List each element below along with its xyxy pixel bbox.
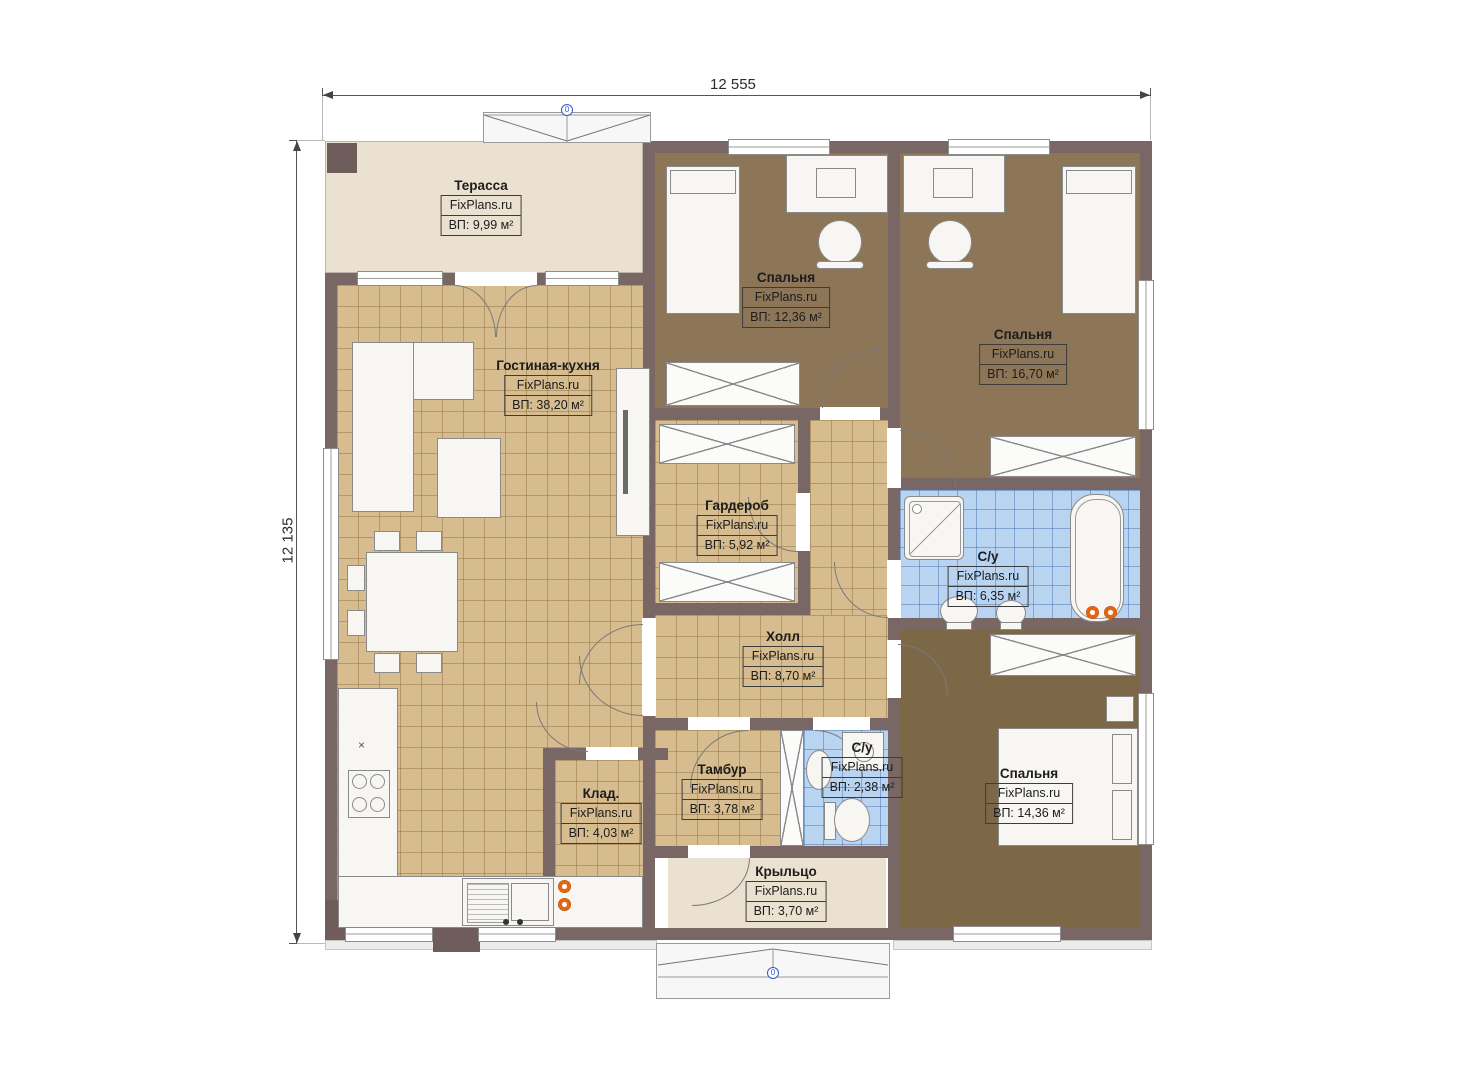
room-area: ВП: 6,35 м² [949,587,1028,606]
fixture-cross-mark: × [358,738,365,752]
door-bath2-opening [813,717,870,730]
room-label-bedroom-1: Спальня FixPlans.ruВП: 12,36 м² [742,270,830,328]
opening-living-hall [642,618,656,716]
burner [370,797,385,812]
pillow [1112,734,1132,784]
dining-chair-1 [374,531,400,551]
chair-back-1 [816,261,864,269]
room-area: ВП: 3,78 м² [683,800,762,819]
room-area: ВП: 4,03 м² [562,824,641,843]
door-bath1-opening [887,560,901,618]
dining-chair-3 [374,653,400,673]
sink-faucet-dot [503,919,509,925]
window-bedroom3-bottom [953,926,1061,942]
dining-chair-6 [347,610,365,636]
room-area: ВП: 16,70 м² [980,365,1066,384]
wall-mid-right-divider [888,141,900,940]
office-chair-1 [818,220,862,264]
room-area: ВП: 8,70 м² [744,667,823,686]
toilet-2-bowl [834,798,870,842]
room-name: Тамбур [698,762,747,777]
room-name: Гостиная-кухня [496,358,599,373]
sink-faucet-dot [517,919,523,925]
dining-table [366,552,458,652]
stove [348,770,390,818]
shower-drain [912,504,922,514]
tv-cabinet [616,368,650,536]
room-area: ВП: 5,92 м² [698,536,777,555]
window-bedroom3-right [1138,693,1154,845]
sink-pedestal-base [1000,622,1022,630]
dimension-ext-line [1150,96,1151,140]
dimension-height-line [296,140,297,943]
dimension-height-label: 12 135 [280,511,297,571]
room-label-bathroom-1: С/у FixPlans.ruВП: 6,35 м² [948,549,1029,607]
door-vestibule-opening [688,717,750,730]
brand-text: FixPlans.ru [505,376,591,396]
room-name: Терасса [454,178,508,193]
room-name: С/у [851,740,872,755]
tv [623,410,628,494]
dimension-arrow-up [293,141,301,151]
dining-chair-2 [416,531,442,551]
bathtub [1070,494,1124,622]
pillow [670,170,736,194]
door-storage-opening [586,747,638,760]
door-terrace-opening [455,272,537,286]
wardrobe-bedroom2 [990,436,1136,477]
brand-text: FixPlans.ru [442,196,521,216]
room-label-storage: Клад. FixPlans.ruВП: 4,03 м² [561,786,642,844]
room-area: ВП: 9,99 м² [442,216,521,235]
brand-text: FixPlans.ru [980,345,1066,365]
room-label-bedroom-2: Спальня FixPlans.ruВП: 16,70 м² [979,327,1067,385]
brand-text: FixPlans.ru [698,516,777,536]
room-area: ВП: 3,70 м² [747,902,826,921]
dimension-ext-line [297,943,325,944]
room-name: Спальня [1000,766,1058,781]
wall-wardrobe-bottom [655,603,810,615]
dimension-arrow-left [323,91,333,99]
bathtub-inner [1075,499,1121,619]
toilet-1-tank [946,622,972,630]
laptop-1 [816,168,856,198]
post-terrace-corner [327,143,357,173]
room-label-porch: Крыльцо FixPlans.ruВП: 3,70 м² [746,864,827,922]
room-label-hall: Холл FixPlans.ruВП: 8,70 м² [743,629,824,687]
room-name: Гардероб [705,498,769,513]
room-label-terrace: Терасса FixPlans.ruВП: 9,99 м² [441,178,522,236]
window-terrace-2 [545,271,619,286]
burner [352,774,367,789]
door-wardrobe-opening [796,493,810,551]
room-name: Спальня [757,270,815,285]
door-bedroom2-opening [887,428,901,488]
room-area: ВП: 14,36 м² [986,804,1072,823]
level-marker-top: 0 [561,104,573,116]
room-name: С/у [977,549,998,564]
closet-bedroom1 [666,362,800,406]
sofa-left-arm [352,342,414,512]
brand-text: FixPlans.ru [743,288,829,308]
wardrobe-cabinet-top [659,424,795,464]
brand-text: FixPlans.ru [823,758,902,778]
window-kitchen-2 [478,926,556,942]
level-marker-bottom: 0 [767,967,779,979]
sink-drainboard [467,883,509,923]
pillow [1066,170,1132,194]
wardrobe-bedroom3 [990,634,1136,676]
brand-text: FixPlans.ru [949,567,1028,587]
pillow [1112,790,1132,840]
dimension-ext-line [297,140,325,141]
room-name: Клад. [583,786,620,801]
floor-plan-canvas: × [0,0,1474,1080]
dimension-width-line [322,95,1151,96]
room-area: ВП: 38,20 м² [505,396,591,415]
room-label-wardrobe: Гардероб FixPlans.ruВП: 5,92 м² [697,498,778,556]
kitchen-radiator-dot [558,898,571,911]
window-living-left [323,448,339,660]
nightstand [1106,696,1134,722]
room-label-vestibule: Тамбур FixPlans.ruВП: 3,78 м² [682,762,763,820]
door-entry-opening [688,845,750,858]
brand-text: FixPlans.ru [986,784,1072,804]
window-terrace-1 [357,271,443,286]
post-bottom-kitchen [433,928,480,952]
brand-text: FixPlans.ru [562,804,641,824]
brand-text: FixPlans.ru [747,882,826,902]
room-area: ВП: 2,38 м² [823,778,902,797]
room-name: Спальня [994,327,1052,342]
dimension-width-label: 12 555 [710,76,756,93]
dimension-arrow-down [293,933,301,943]
dining-chair-5 [347,565,365,591]
wall-living-divider [643,141,655,940]
room-label-bedroom-3: Спальня FixPlans.ruВП: 14,36 м² [985,766,1073,824]
room-label-bathroom-2: С/у FixPlans.ruВП: 2,38 м² [822,740,903,798]
kitchen-sink [462,878,554,926]
terrace-steps [483,112,651,143]
room-name: Холл [766,629,800,644]
burner [352,797,367,812]
dimension-ext-line [322,96,323,140]
towel-radiator-dot [1104,606,1117,619]
room-name: Крыльцо [755,864,816,879]
sink-bowl [511,883,549,921]
wardrobe-cabinet-bottom [659,562,795,602]
laptop-2 [933,168,973,198]
dining-chair-4 [416,653,442,673]
window-kitchen-1 [345,926,433,942]
window-bedroom2-top [948,139,1050,155]
window-bedroom1-top [728,139,830,155]
chair-back-2 [926,261,974,269]
towel-radiator-dot [1086,606,1099,619]
vestibule-cabinet [780,730,804,846]
kitchen-radiator-dot [558,880,571,893]
dimension-arrow-right [1140,91,1150,99]
brand-text: FixPlans.ru [744,647,823,667]
room-area: ВП: 12,36 м² [743,308,829,327]
office-chair-2 [928,220,972,264]
coffee-table [437,438,501,518]
brand-text: FixPlans.ru [683,780,762,800]
window-bedroom2-right [1138,280,1154,430]
room-label-living-kitchen: Гостиная-кухня FixPlans.ruВП: 38,20 м² [496,358,599,416]
door-bedroom1-opening [820,407,880,420]
burner [370,774,385,789]
